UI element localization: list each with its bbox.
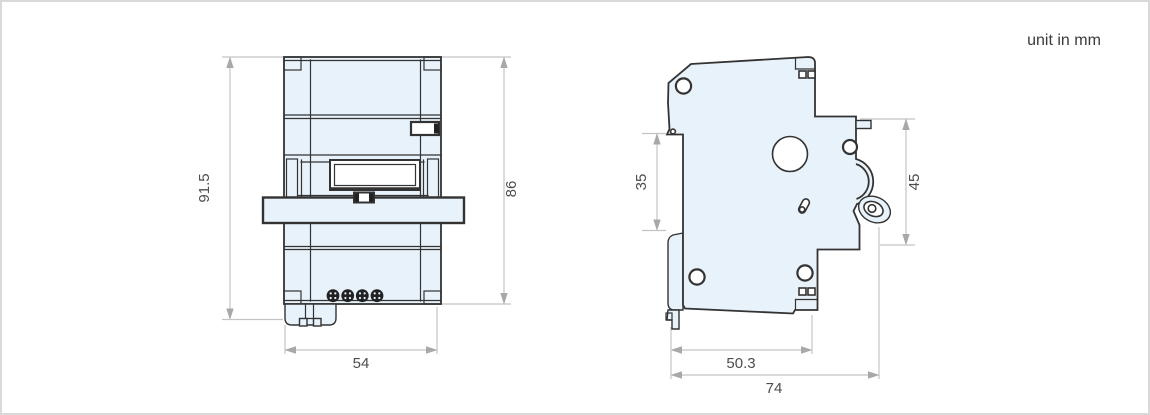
- pin-hole: [671, 129, 676, 134]
- side-view: 35 45 50.3 74: [633, 57, 923, 397]
- dim-front-body-height: 86: [442, 57, 520, 305]
- side-tab: [856, 121, 871, 129]
- screw-icon: [371, 289, 384, 302]
- dim-side-base-depth: 50.3: [671, 315, 813, 372]
- front-label-window: [411, 122, 439, 135]
- dim-side-din-rail: 35: [633, 133, 666, 231]
- screw-hole-right: [843, 140, 857, 154]
- dim-front-overall-height: 91.5: [196, 57, 283, 321]
- unit-note: unit in mm: [1027, 32, 1101, 49]
- front-view: 91.5 86 54: [196, 57, 520, 373]
- dim-label-overall-depth: 74: [766, 380, 783, 397]
- front-cover-bar: [263, 193, 464, 224]
- technical-drawing: 91.5 86 54: [2, 2, 1150, 415]
- center-hole: [773, 137, 808, 172]
- screw-icon: [341, 289, 354, 302]
- front-din-clip: [285, 304, 336, 326]
- screw-icon: [327, 289, 340, 302]
- dim-label-overall-height: 91.5: [196, 173, 213, 202]
- screw-hole-top-left: [676, 78, 691, 93]
- screw-hole-bottom-left: [689, 269, 704, 284]
- dim-label-width: 54: [353, 355, 370, 372]
- dim-label-front-section: 45: [906, 174, 923, 191]
- front-seal-latch: [354, 193, 374, 203]
- screw-icon: [356, 289, 369, 302]
- screw-hole-bottom-mid: [797, 265, 812, 280]
- dim-label-base-depth: 50.3: [726, 355, 755, 372]
- dim-label-body-height: 86: [503, 181, 520, 198]
- dimension-drawing-card: 91.5 86 54: [0, 0, 1150, 415]
- side-din-clip: [666, 233, 683, 329]
- dim-label-din-rail: 35: [633, 174, 650, 191]
